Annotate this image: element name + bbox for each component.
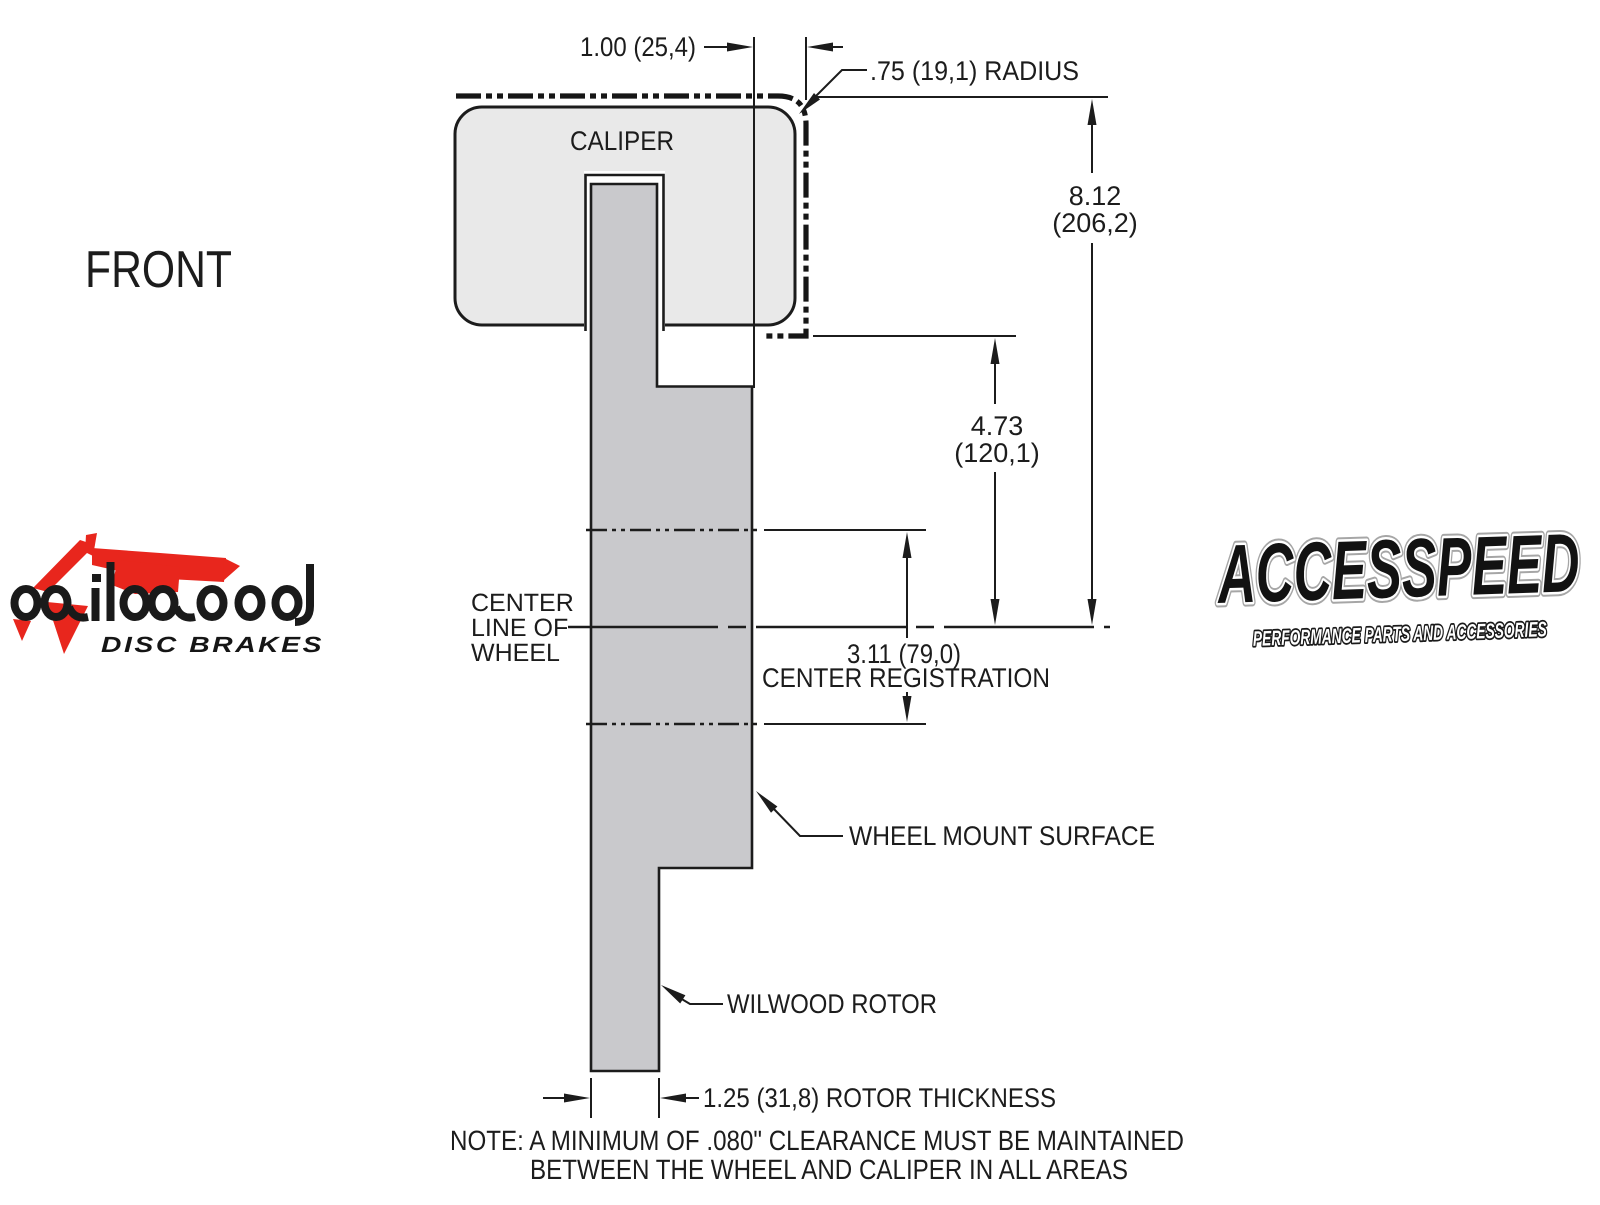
svg-text:1.00 (25,4): 1.00 (25,4) xyxy=(580,32,696,62)
svg-text:8.12: 8.12 xyxy=(1069,181,1122,211)
svg-text:WHEEL MOUNT SURFACE: WHEEL MOUNT SURFACE xyxy=(849,821,1155,851)
svg-text:WHEEL: WHEEL xyxy=(471,639,560,667)
svg-text:4.73: 4.73 xyxy=(971,411,1024,441)
svg-text:LINE OF: LINE OF xyxy=(471,614,568,642)
svg-text:FRONT: FRONT xyxy=(85,241,232,299)
svg-text:NOTE: A MINIMUM OF .080" CLEAR: NOTE: A MINIMUM OF .080" CLEARANCE MUST … xyxy=(450,1125,1184,1156)
svg-text:(206,2): (206,2) xyxy=(1052,208,1138,238)
svg-text:BETWEEN THE WHEEL AND CALIPER: BETWEEN THE WHEEL AND CALIPER IN ALL ARE… xyxy=(530,1154,1128,1185)
svg-text:(120,1): (120,1) xyxy=(954,438,1040,468)
svg-text:ACCESSPEED: ACCESSPEED xyxy=(1215,516,1581,621)
svg-text:1.25 (31,8) ROTOR THICKNESS: 1.25 (31,8) ROTOR THICKNESS xyxy=(703,1083,1056,1113)
svg-text:CALIPER: CALIPER xyxy=(570,126,674,156)
svg-text:CENTER: CENTER xyxy=(471,589,574,617)
svg-text:WILWOOD ROTOR: WILWOOD ROTOR xyxy=(727,989,937,1019)
svg-text:.75 (19,1) RADIUS: .75 (19,1) RADIUS xyxy=(870,56,1079,86)
svg-text:DISC BRAKES: DISC BRAKES xyxy=(101,632,324,657)
svg-text:CENTER REGISTRATION: CENTER REGISTRATION xyxy=(762,663,1050,693)
